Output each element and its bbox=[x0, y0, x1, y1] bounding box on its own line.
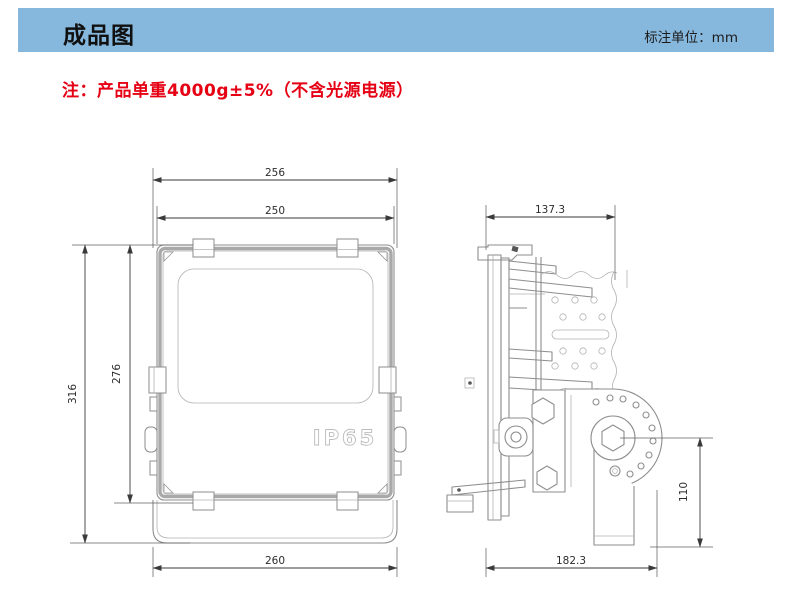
side-view-bracket bbox=[532, 389, 662, 545]
dim-label-bottom-width: 260 bbox=[265, 555, 285, 567]
bracket-hex-bolt-bottom bbox=[537, 466, 557, 490]
dim-label-top-depth: 137.3 bbox=[535, 204, 565, 216]
side-view-drawing: 137.3 110 182.3 bbox=[447, 204, 713, 577]
front-view-body: IP65 bbox=[145, 239, 406, 543]
dim-label-top-inner-width: 250 bbox=[265, 205, 285, 217]
ip-rating-label: IP65 bbox=[313, 426, 377, 450]
dim-label-overall-height: 316 bbox=[67, 384, 79, 404]
dim-label-body-height: 276 bbox=[111, 364, 123, 384]
dim-front-top-inner-width: 250 bbox=[157, 205, 394, 244]
dim-front-bottom-width: 260 bbox=[153, 547, 397, 577]
dim-label-bracket-height: 110 bbox=[678, 482, 690, 502]
front-view-clips bbox=[149, 239, 396, 510]
dim-label-top-outer-width: 256 bbox=[265, 167, 285, 179]
front-view-drawing: IP65 256 250 316 bbox=[67, 167, 406, 577]
side-view-cable-gland bbox=[494, 418, 533, 456]
side-view-pin-fins bbox=[552, 297, 609, 369]
side-view-body bbox=[447, 245, 662, 545]
technical-drawing: IP65 256 250 316 bbox=[0, 0, 792, 593]
front-view-lens bbox=[178, 269, 373, 403]
page-root: 成品图 标注单位：mm 注：产品单重4000g±5%（不含光源电源） bbox=[0, 0, 792, 593]
dim-label-overall-depth: 182.3 bbox=[556, 555, 586, 567]
dim-side-top-depth: 137.3 bbox=[486, 204, 615, 280]
